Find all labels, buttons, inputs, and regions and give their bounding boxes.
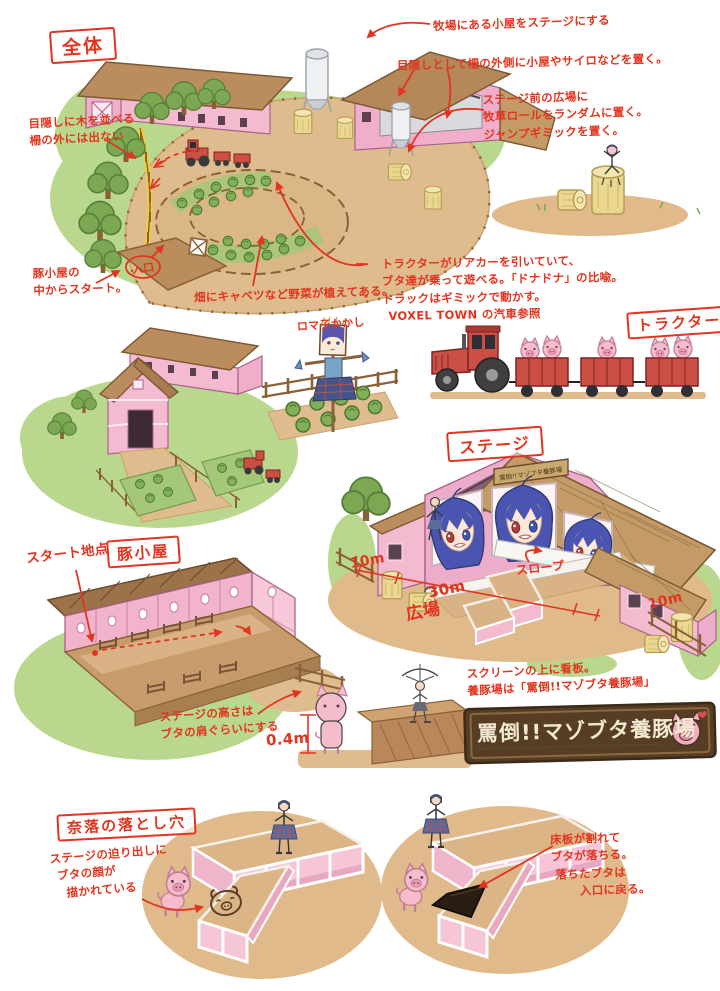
pig-cart-icon <box>646 336 698 397</box>
note-start-from-hut: 豚小屋の 中からスタート。 <box>32 262 127 300</box>
tractor-icon <box>432 326 516 392</box>
concept-art-page: 罵倒!!マゾブタ養豚場 <box>0 0 720 991</box>
barns-farm-illustration <box>20 328 298 528</box>
gate-icon <box>189 238 207 256</box>
note-entrance: 入口 <box>131 260 156 279</box>
note-plaza-gimmicks: ステージ前の広場に 牧草ロールをランダムに置く。 ジャンプギミックを置く。 <box>482 86 649 143</box>
label-overview: 全体 <box>49 27 117 65</box>
label-pig-hut: 豚小屋 <box>106 536 180 569</box>
scarecrow-illustration <box>262 317 398 440</box>
note-pit-fall: 床板が割れて ブタが落ちる。 落ちたブタは 入口に戻る。 <box>550 828 651 900</box>
pig-side-icon <box>316 685 347 754</box>
note-pit-pig-face: ステージの迫り出しに ブタの顔が 描かれている <box>49 841 171 903</box>
note-height-value: 0.4m <box>265 727 310 752</box>
pig-cart-icon <box>581 337 645 397</box>
hay-jump-illustration <box>492 145 700 236</box>
note-tractor-gimmick: トラクターがリアカーを引いていて、 ブタ達が乗って遊べる。「ドナドナ」の比喩。 … <box>381 252 624 325</box>
pig-cart-icon <box>516 336 580 397</box>
note-screening-trees: 目隠しに木を並べる 柵の外には出ない <box>28 110 136 150</box>
signboard-text: 罵倒!!マゾブタ養豚場 <box>477 712 697 748</box>
